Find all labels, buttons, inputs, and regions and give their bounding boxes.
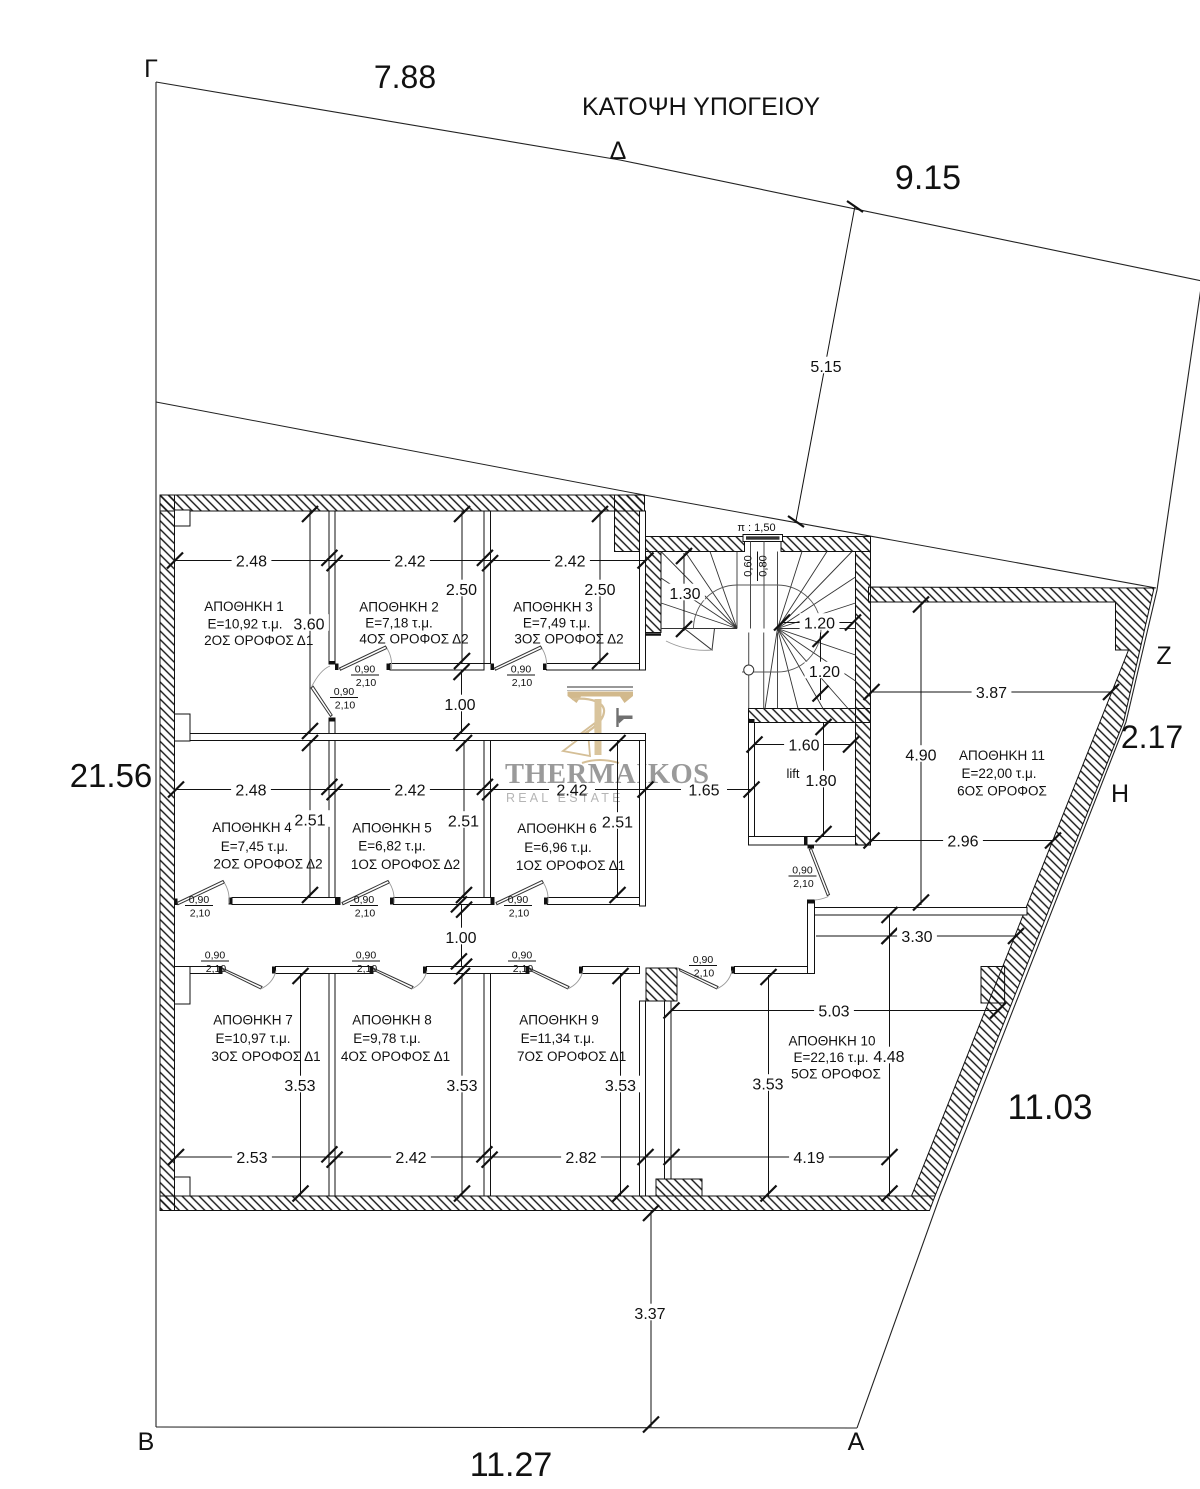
svg-text:2,10: 2,10 (513, 963, 534, 975)
svg-text:ΑΠΟΘΗΚΗ 3: ΑΠΟΘΗΚΗ 3 (513, 600, 593, 615)
svg-text:2,10: 2,10 (793, 878, 814, 890)
svg-text:1.20: 1.20 (809, 664, 840, 681)
svg-text:B: B (138, 1428, 155, 1456)
svg-text:ΑΠΟΘΗΚΗ 8: ΑΠΟΘΗΚΗ 8 (352, 1013, 432, 1028)
svg-text:2.51: 2.51 (294, 812, 325, 829)
svg-text:E=6,96 τ.μ.: E=6,96 τ.μ. (524, 840, 592, 855)
svg-text:3.53: 3.53 (605, 1078, 636, 1095)
svg-text:THERMAIKOS: THERMAIKOS (505, 759, 710, 790)
svg-text:1.20: 1.20 (804, 615, 835, 632)
svg-text:3.30: 3.30 (901, 929, 932, 946)
svg-text:2,10: 2,10 (356, 677, 377, 689)
svg-text:3.53: 3.53 (284, 1078, 315, 1095)
svg-text:lift: lift (787, 766, 800, 781)
svg-text:7ΟΣ ΟΡΟΦΟΣ Δ1: 7ΟΣ ΟΡΟΦΟΣ Δ1 (517, 1049, 626, 1064)
svg-text:5.15: 5.15 (810, 359, 841, 376)
svg-text:E=10,92 τ.μ.: E=10,92 τ.μ. (207, 617, 282, 632)
svg-text:0,90: 0,90 (356, 950, 377, 962)
svg-text:2ΟΣ ΟΡΟΦΟΣ Δ2: 2ΟΣ ΟΡΟΦΟΣ Δ2 (213, 857, 322, 872)
svg-text:3.53: 3.53 (446, 1078, 477, 1095)
svg-text:1.60: 1.60 (788, 737, 819, 754)
svg-text:A: A (848, 1428, 865, 1456)
svg-text:0,90: 0,90 (354, 894, 375, 906)
svg-text:3ΟΣ ΟΡΟΦΟΣ Δ2: 3ΟΣ ΟΡΟΦΟΣ Δ2 (514, 632, 623, 647)
svg-text:π : 1,50: π : 1,50 (737, 522, 775, 534)
svg-text:H: H (1111, 780, 1129, 808)
svg-text:1.30: 1.30 (669, 586, 700, 603)
svg-text:E=22,00 τ.μ.: E=22,00 τ.μ. (961, 766, 1036, 781)
svg-text:0,90: 0,90 (511, 664, 532, 676)
svg-text:2.51: 2.51 (448, 813, 479, 830)
svg-text:4.19: 4.19 (793, 1150, 824, 1167)
svg-text:ΑΠΟΘΗΚΗ 9: ΑΠΟΘΗΚΗ 9 (519, 1013, 599, 1028)
svg-text:2.42: 2.42 (395, 1150, 426, 1167)
svg-text:4ΟΣ ΟΡΟΦΟΣ Δ1: 4ΟΣ ΟΡΟΦΟΣ Δ1 (341, 1049, 450, 1064)
svg-text:E=7,18 τ.μ.: E=7,18 τ.μ. (365, 616, 433, 631)
svg-text:E=9,78 τ.μ.: E=9,78 τ.μ. (353, 1031, 421, 1046)
svg-text:11.03: 11.03 (1008, 1088, 1093, 1127)
svg-text:ΑΠΟΘΗΚΗ 1: ΑΠΟΘΗΚΗ 1 (204, 599, 284, 614)
svg-text:2.96: 2.96 (947, 833, 978, 850)
svg-text:0,90: 0,90 (205, 950, 226, 962)
svg-text:2,10: 2,10 (335, 700, 356, 712)
svg-text:0,90: 0,90 (189, 894, 210, 906)
svg-text:2ΟΣ ΟΡΟΦΟΣ Δ1: 2ΟΣ ΟΡΟΦΟΣ Δ1 (204, 633, 313, 648)
svg-text:2.42: 2.42 (554, 553, 585, 570)
svg-text:11.27: 11.27 (470, 1446, 553, 1484)
svg-text:2,10: 2,10 (206, 963, 227, 975)
svg-text:1.00: 1.00 (445, 930, 476, 947)
svg-text:2.82: 2.82 (565, 1150, 596, 1167)
svg-text:4ΟΣ ΟΡΟΦΟΣ Δ2: 4ΟΣ ΟΡΟΦΟΣ Δ2 (359, 632, 468, 647)
svg-text:ΑΠΟΘΗΚΗ 6: ΑΠΟΘΗΚΗ 6 (517, 821, 597, 836)
svg-text:1ΟΣ ΟΡΟΦΟΣ Δ1: 1ΟΣ ΟΡΟΦΟΣ Δ1 (516, 858, 625, 873)
svg-text:2.48: 2.48 (235, 782, 266, 799)
svg-text:0,80: 0,80 (758, 555, 770, 576)
svg-text:E=11,34 τ.μ.: E=11,34 τ.μ. (521, 1031, 595, 1046)
svg-text:0,90: 0,90 (693, 954, 714, 966)
svg-text:Δ: Δ (610, 137, 627, 165)
svg-text:4.90: 4.90 (905, 747, 936, 764)
svg-text:2.50: 2.50 (446, 582, 477, 599)
svg-text:ΑΠΟΘΗΚΗ 10: ΑΠΟΘΗΚΗ 10 (788, 1034, 875, 1049)
svg-text:E=10,97 τ.μ.: E=10,97 τ.μ. (215, 1031, 290, 1046)
svg-text:E=7,45 τ.μ.: E=7,45 τ.μ. (221, 839, 289, 854)
svg-text:E=6,82 τ.μ.: E=6,82 τ.μ. (358, 839, 426, 854)
svg-text:2.17: 2.17 (1121, 719, 1183, 755)
svg-text:2.48: 2.48 (236, 553, 267, 570)
svg-text:5.03: 5.03 (818, 1003, 849, 1020)
svg-text:0,90: 0,90 (512, 950, 533, 962)
svg-text:3.53: 3.53 (752, 1076, 783, 1093)
svg-text:2.53: 2.53 (236, 1150, 267, 1167)
svg-text:7.88: 7.88 (374, 59, 436, 95)
svg-text:0,90: 0,90 (508, 894, 529, 906)
svg-text:9.15: 9.15 (895, 159, 961, 197)
svg-text:1.65: 1.65 (688, 782, 719, 799)
svg-text:6ΟΣ ΟΡΟΦΟΣ: 6ΟΣ ΟΡΟΦΟΣ (957, 784, 1047, 799)
svg-text:2,10: 2,10 (190, 908, 211, 920)
svg-text:1ΟΣ ΟΡΟΦΟΣ Δ2: 1ΟΣ ΟΡΟΦΟΣ Δ2 (351, 857, 460, 872)
svg-text:2.42: 2.42 (394, 553, 425, 570)
svg-text:1.00: 1.00 (444, 697, 475, 714)
svg-text:0,60: 0,60 (743, 555, 755, 576)
svg-text:ΚΑΤΟΨΗ ΥΠΟΓΕΙΟΥ: ΚΑΤΟΨΗ ΥΠΟΓΕΙΟΥ (582, 93, 820, 121)
svg-text:ΑΠΟΘΗΚΗ 5: ΑΠΟΘΗΚΗ 5 (352, 821, 432, 836)
svg-text:4.48: 4.48 (873, 1049, 904, 1066)
svg-text:2.50: 2.50 (584, 582, 615, 599)
svg-text:ΑΠΟΘΗΚΗ 11: ΑΠΟΘΗΚΗ 11 (959, 748, 1045, 763)
svg-text:ΑΠΟΘΗΚΗ 4: ΑΠΟΘΗΚΗ 4 (212, 820, 292, 835)
svg-text:3ΟΣ ΟΡΟΦΟΣ Δ1: 3ΟΣ ΟΡΟΦΟΣ Δ1 (211, 1049, 320, 1064)
svg-text:2,10: 2,10 (509, 908, 530, 920)
svg-text:ΑΠΟΘΗΚΗ 2: ΑΠΟΘΗΚΗ 2 (359, 600, 439, 615)
svg-text:3.37: 3.37 (634, 1306, 665, 1323)
svg-text:Γ: Γ (144, 55, 158, 83)
svg-text:21.56: 21.56 (70, 757, 153, 794)
svg-text:2,10: 2,10 (512, 677, 533, 689)
svg-text:ΑΠΟΘΗΚΗ 7: ΑΠΟΘΗΚΗ 7 (213, 1013, 293, 1028)
svg-text:2.42: 2.42 (394, 782, 425, 799)
svg-text:5ΟΣ ΟΡΟΦΟΣ: 5ΟΣ ΟΡΟΦΟΣ (791, 1067, 881, 1082)
svg-text:0,90: 0,90 (792, 865, 813, 877)
svg-text:E=7,49 τ.μ.: E=7,49 τ.μ. (523, 616, 591, 631)
svg-text:2,10: 2,10 (355, 908, 376, 920)
svg-text:3.87: 3.87 (976, 685, 1007, 702)
svg-text:2.42: 2.42 (556, 782, 587, 799)
svg-text:Z: Z (1156, 642, 1171, 670)
svg-text:1.80: 1.80 (805, 773, 836, 790)
svg-text:0,90: 0,90 (355, 664, 376, 676)
svg-text:3.60: 3.60 (293, 616, 324, 633)
svg-text:2.51: 2.51 (602, 814, 633, 831)
svg-text:2,10: 2,10 (694, 968, 715, 980)
svg-text:E=22,16 τ.μ.: E=22,16 τ.μ. (793, 1050, 868, 1065)
svg-text:2,10: 2,10 (357, 963, 378, 975)
svg-text:0,90: 0,90 (334, 686, 355, 698)
